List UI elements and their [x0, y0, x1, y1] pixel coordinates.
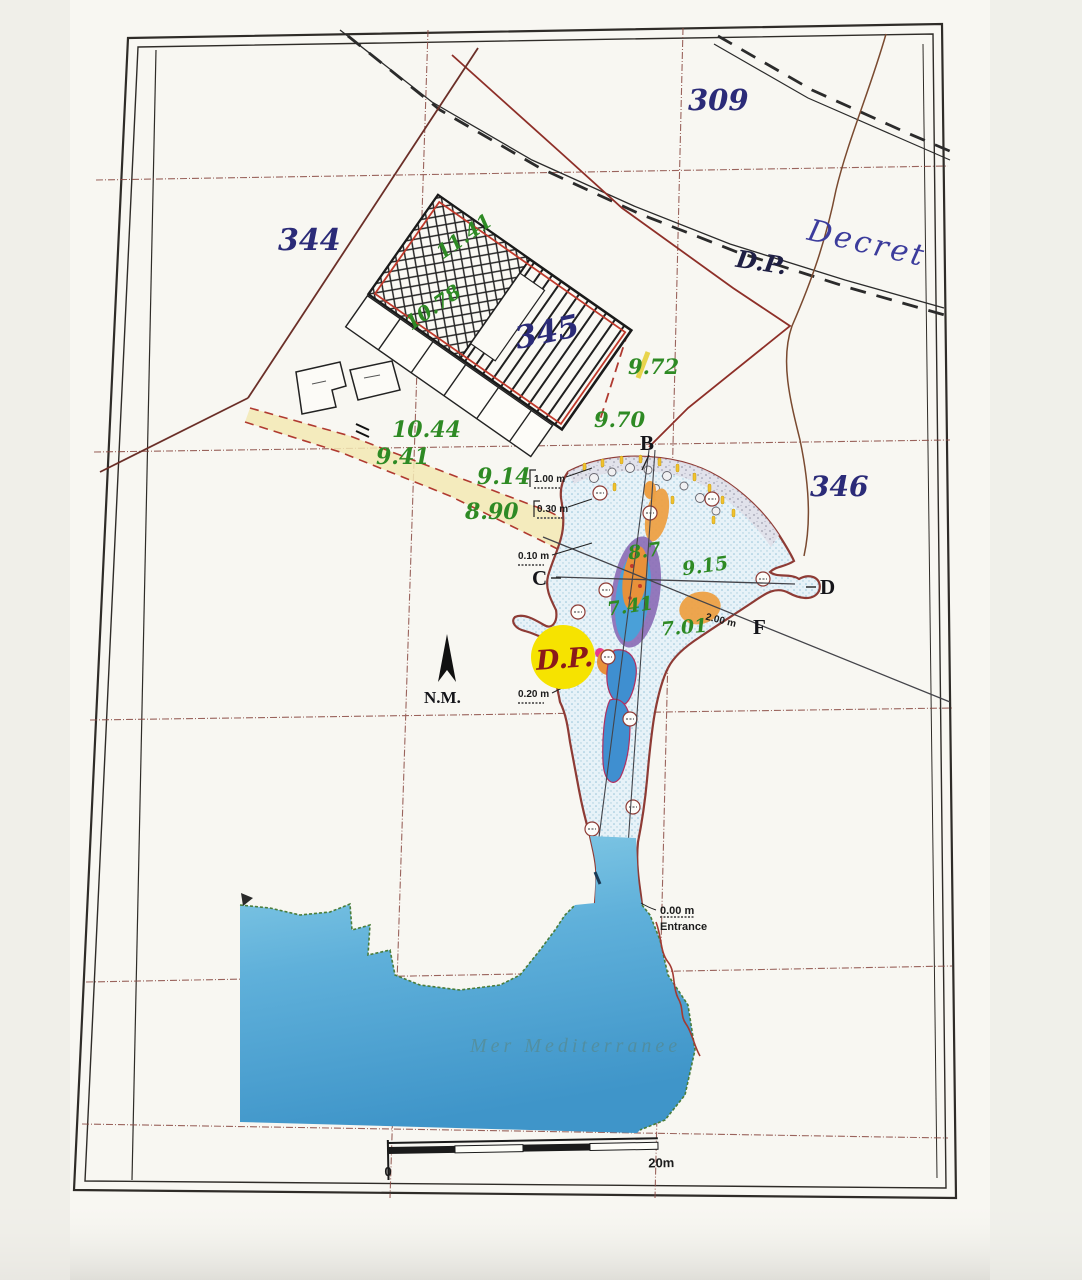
measure-0-30: 0.30 m: [537, 504, 568, 515]
sea-name-label: Mer Mediterranee: [469, 1035, 681, 1057]
map-canvas: Mer Mediterranee 344 345 309 346 Decret …: [0, 0, 1082, 1280]
north-label: N.M.: [424, 688, 461, 707]
photo-shadow-right: [990, 0, 1082, 1280]
point-d-label: D: [820, 575, 835, 599]
entrance-label: Entrance: [660, 921, 707, 933]
elevation-10-44: 10.44: [392, 417, 461, 443]
scanned-survey-map: Mer Mediterranee 344 345 309 346 Decret …: [0, 0, 1082, 1280]
elevation-9-14: 9.14: [477, 464, 531, 490]
elevation-8-7: 8.7: [626, 538, 663, 565]
point-b-label: B: [640, 431, 654, 455]
photo-shadow-bottom: [0, 1200, 1082, 1280]
dp-circle-label: D.P.: [534, 642, 594, 677]
measure-0-10: 0.10 m: [518, 551, 549, 562]
measure-0-20: 0.20 m: [518, 689, 549, 700]
parcel-label-344: 344: [278, 223, 341, 258]
parcel-label-309: 309: [688, 83, 749, 117]
elevation-9-41: 9.41: [376, 444, 430, 470]
scale-start-label: 0: [384, 1164, 391, 1179]
dp-circle: D.P.: [531, 625, 595, 689]
elevation-8-90: 8.90: [464, 499, 519, 525]
photo-shadow-left: [0, 0, 70, 1280]
elevation-9-72: 9.72: [628, 354, 679, 379]
measure-1-00: 1.00 m: [534, 474, 565, 485]
point-f-label: F: [753, 615, 766, 639]
elevation-7-01: 7.01: [660, 615, 708, 641]
elevation-9-70: 9.70: [594, 407, 646, 432]
measure-0-00: 0.00 m: [660, 905, 694, 917]
scale-end-label: 20m: [648, 1155, 674, 1170]
parcel-label-346: 346: [810, 470, 868, 503]
point-c-label: C: [532, 566, 547, 590]
